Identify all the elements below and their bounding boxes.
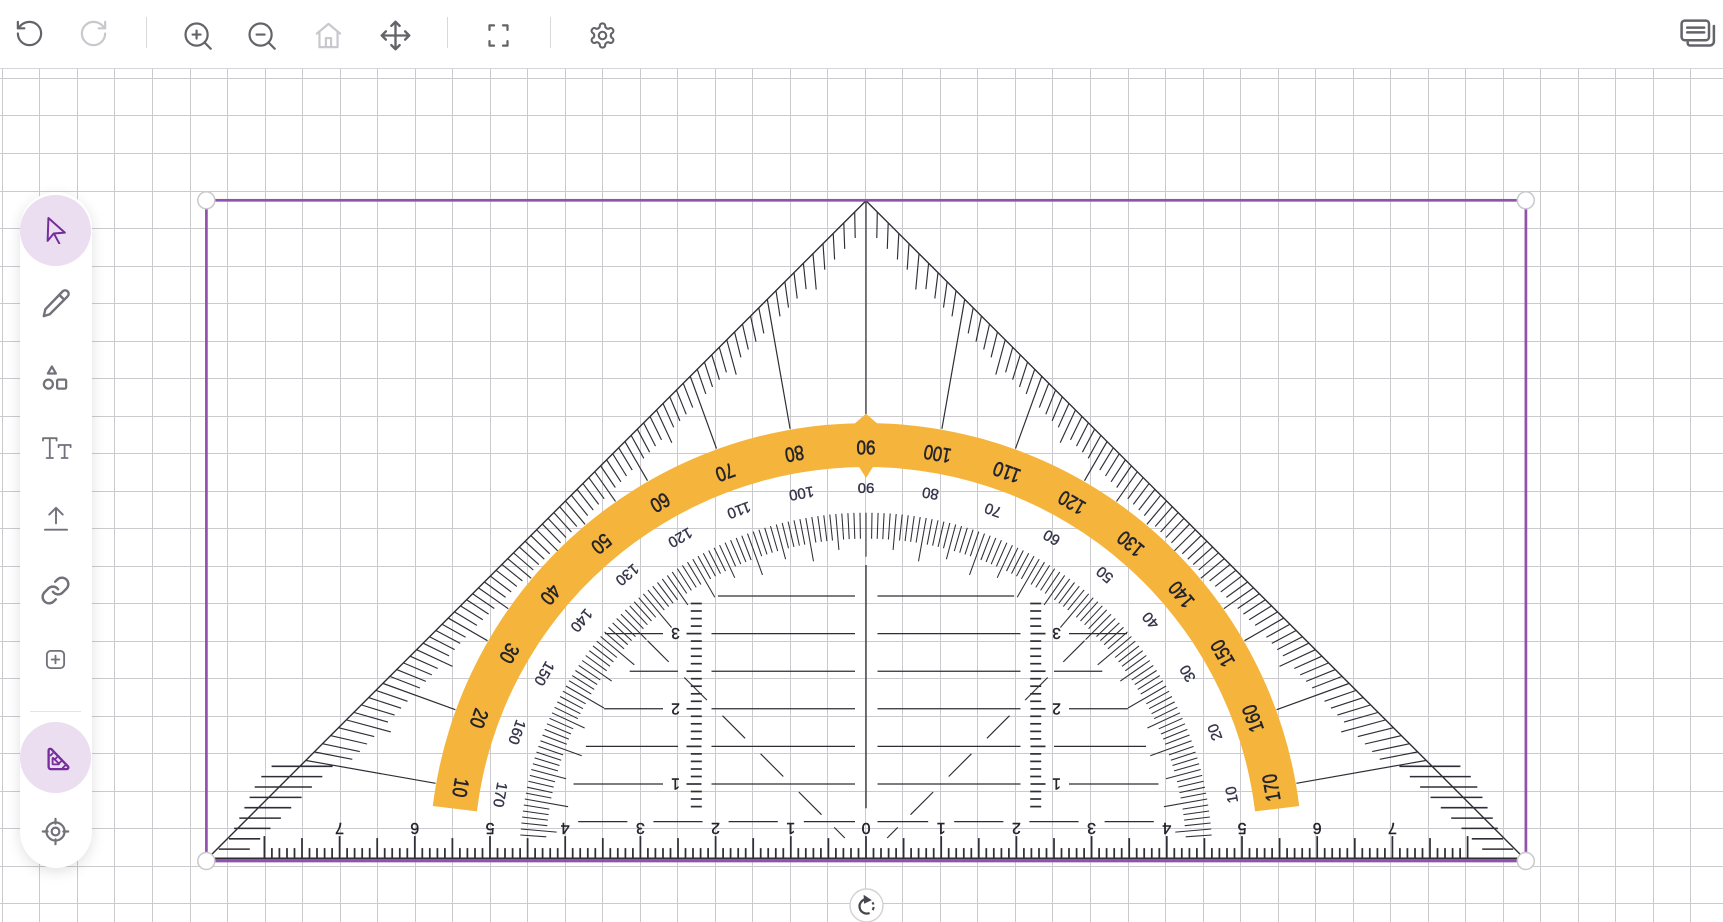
svg-text:130: 130: [612, 560, 642, 589]
svg-text:7: 7: [1388, 819, 1397, 836]
svg-text:4: 4: [561, 819, 570, 836]
svg-text:80: 80: [921, 483, 940, 503]
svg-text:70: 70: [982, 499, 1003, 521]
svg-text:1: 1: [937, 819, 946, 836]
svg-text:50: 50: [1093, 562, 1117, 586]
svg-text:80: 80: [783, 440, 806, 466]
svg-text:1: 1: [786, 819, 795, 836]
svg-text:4: 4: [1162, 819, 1171, 836]
svg-text:160: 160: [504, 717, 529, 746]
svg-text:5: 5: [1237, 819, 1246, 836]
svg-text:90: 90: [858, 479, 875, 496]
svg-text:90: 90: [857, 436, 876, 459]
svg-text:150: 150: [530, 658, 557, 688]
svg-text:5: 5: [485, 819, 494, 836]
svg-text:100: 100: [922, 440, 953, 467]
svg-text:40: 40: [1139, 608, 1163, 632]
svg-text:120: 120: [665, 524, 695, 551]
svg-text:140: 140: [567, 605, 596, 635]
svg-text:110: 110: [725, 498, 753, 522]
svg-text:3: 3: [636, 819, 645, 836]
svg-text:6: 6: [1313, 819, 1322, 836]
svg-text:3: 3: [1052, 624, 1061, 641]
svg-text:60: 60: [1040, 526, 1063, 549]
svg-text:2: 2: [711, 819, 720, 836]
svg-text:2: 2: [671, 699, 680, 716]
svg-text:1: 1: [671, 775, 680, 792]
svg-text:3: 3: [1087, 819, 1096, 836]
svg-text:0: 0: [861, 819, 870, 836]
svg-text:30: 30: [1177, 662, 1200, 685]
svg-text:100: 100: [788, 482, 816, 503]
svg-text:1: 1: [1052, 775, 1061, 792]
svg-text:3: 3: [671, 624, 680, 641]
svg-text:170: 170: [1258, 772, 1285, 803]
svg-text:7: 7: [335, 819, 344, 836]
svg-text:6: 6: [410, 819, 419, 836]
svg-text:10: 10: [1222, 785, 1242, 804]
svg-text:170: 170: [489, 781, 510, 809]
svg-text:2: 2: [1052, 699, 1061, 716]
svg-text:10: 10: [447, 776, 473, 799]
svg-text:20: 20: [1205, 721, 1227, 742]
svg-text:2: 2: [1012, 819, 1021, 836]
